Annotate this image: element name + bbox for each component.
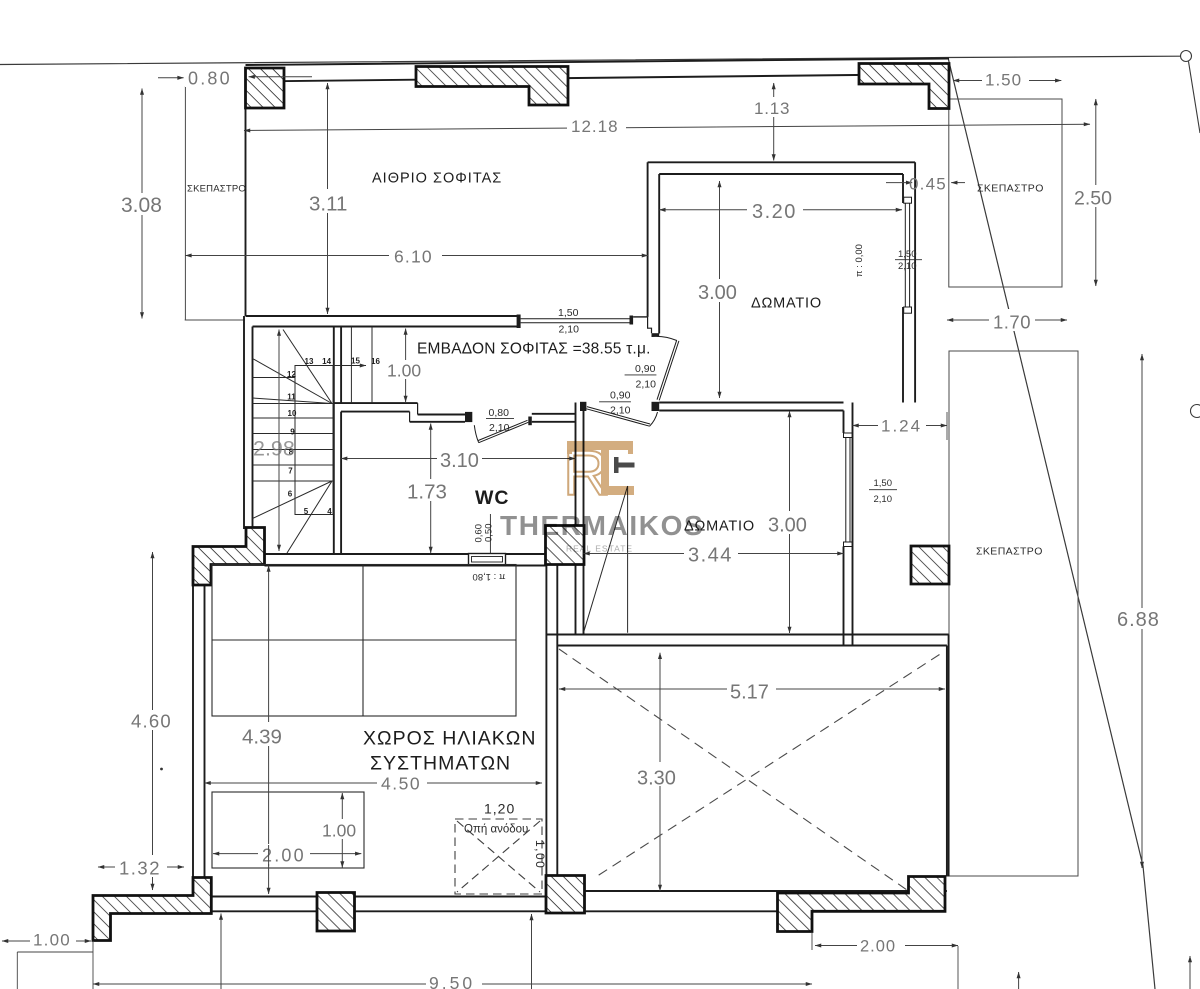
- svg-text:Οπή ανόδου: Οπή ανόδου: [464, 824, 528, 836]
- svg-text:1.70: 1.70: [993, 312, 1031, 333]
- svg-text:1.00: 1.00: [33, 931, 71, 950]
- svg-text:2,10: 2,10: [610, 405, 631, 417]
- svg-text:13: 13: [305, 357, 314, 366]
- svg-text:ΧΩΡΟΣ ΗΛΙΑΚΩΝ: ΧΩΡΟΣ ΗΛΙΑΚΩΝ: [363, 728, 536, 750]
- svg-text:3.10: 3.10: [440, 450, 479, 472]
- svg-text:9.50: 9.50: [429, 973, 475, 989]
- svg-text:ΣΚΕΠΑΣΤΡΟ: ΣΚΕΠΑΣΤΡΟ: [977, 183, 1044, 195]
- svg-text:1.50: 1.50: [985, 71, 1022, 90]
- svg-text:2,10: 2,10: [489, 422, 510, 434]
- svg-text:3.44: 3.44: [688, 545, 733, 567]
- svg-text:6.10: 6.10: [394, 247, 433, 267]
- svg-text:4: 4: [327, 507, 332, 516]
- svg-text:2.98: 2.98: [253, 437, 295, 461]
- svg-text:3.11: 3.11: [309, 193, 347, 216]
- svg-text:10: 10: [288, 409, 297, 418]
- svg-text:3.30: 3.30: [637, 768, 676, 790]
- svg-text:2.00: 2.00: [860, 938, 896, 956]
- svg-text:1,20: 1,20: [484, 801, 515, 817]
- svg-text:ΑΙΘΡΙΟ ΣΟΦΙΤΑΣ: ΑΙΘΡΙΟ ΣΟΦΙΤΑΣ: [372, 171, 502, 187]
- svg-text:3.20: 3.20: [752, 201, 797, 223]
- svg-text:ΣΥΣΤΗΜΑΤΩΝ: ΣΥΣΤΗΜΑΤΩΝ: [370, 753, 511, 775]
- svg-text:3.00: 3.00: [768, 515, 807, 537]
- svg-text:2,10: 2,10: [636, 379, 657, 391]
- svg-text:THERMAIKOS: THERMAIKOS: [500, 510, 704, 541]
- svg-text:11: 11: [287, 393, 296, 402]
- svg-text:3.08: 3.08: [121, 194, 162, 217]
- svg-text:0,80: 0,80: [489, 407, 510, 419]
- svg-text:WC: WC: [475, 487, 510, 509]
- svg-text:0,50: 0,50: [484, 524, 495, 543]
- svg-text:π : 1,80: π : 1,80: [473, 571, 506, 582]
- svg-text:2.50: 2.50: [1074, 188, 1112, 210]
- svg-text:REAL ESTATE: REAL ESTATE: [566, 544, 633, 554]
- svg-text:15: 15: [351, 357, 360, 366]
- svg-text:1,00: 1,00: [533, 840, 547, 869]
- svg-text:12.18: 12.18: [571, 117, 619, 136]
- svg-text:1.73: 1.73: [407, 481, 447, 504]
- svg-text:π : 0,00: π : 0,00: [854, 244, 865, 277]
- svg-text:5.17: 5.17: [730, 682, 769, 704]
- svg-text:12: 12: [287, 370, 296, 379]
- svg-text:0,60: 0,60: [474, 524, 485, 543]
- svg-text:ΣΚΕΠΑΣΤΡΟ: ΣΚΕΠΑΣΤΡΟ: [187, 184, 246, 195]
- svg-text:1.24: 1.24: [881, 417, 922, 436]
- svg-text:1,50: 1,50: [558, 307, 579, 319]
- svg-text:7: 7: [288, 467, 293, 476]
- svg-text:1.00: 1.00: [387, 361, 421, 381]
- svg-text:16: 16: [371, 357, 380, 366]
- svg-text:4.60: 4.60: [131, 711, 172, 732]
- svg-text:0.45: 0.45: [909, 175, 947, 194]
- svg-text:1,50: 1,50: [874, 478, 893, 489]
- svg-text:4.50: 4.50: [381, 774, 421, 794]
- svg-text:5: 5: [304, 507, 309, 516]
- svg-text:14: 14: [322, 357, 331, 366]
- svg-text:ΕΜΒΑΔΟΝ ΣΟΦΙΤΑΣ =38.55 τ.μ.: ΕΜΒΑΔΟΝ ΣΟΦΙΤΑΣ =38.55 τ.μ.: [417, 341, 651, 358]
- svg-text:6.88: 6.88: [1117, 609, 1160, 631]
- svg-text:1.13: 1.13: [754, 99, 790, 118]
- svg-text:1.00: 1.00: [322, 821, 356, 841]
- svg-text:6: 6: [288, 490, 293, 499]
- svg-text:9: 9: [290, 428, 295, 437]
- svg-text:1.32: 1.32: [119, 858, 161, 879]
- svg-text:ΣΚΕΠΑΣΤΡΟ: ΣΚΕΠΑΣΤΡΟ: [976, 546, 1043, 558]
- svg-text:0,90: 0,90: [610, 390, 631, 402]
- svg-text:2,10: 2,10: [559, 324, 580, 336]
- svg-text:4.39: 4.39: [242, 726, 282, 749]
- svg-text:3.00: 3.00: [698, 282, 737, 304]
- svg-text:2,10: 2,10: [874, 494, 893, 505]
- svg-text:1,50: 1,50: [898, 249, 917, 260]
- svg-text:0,90: 0,90: [635, 363, 656, 375]
- svg-text:2,10: 2,10: [898, 261, 917, 272]
- svg-text:ΔΩΜΑΤΙΟ: ΔΩΜΑΤΙΟ: [751, 296, 822, 312]
- svg-text:0.80: 0.80: [188, 69, 232, 89]
